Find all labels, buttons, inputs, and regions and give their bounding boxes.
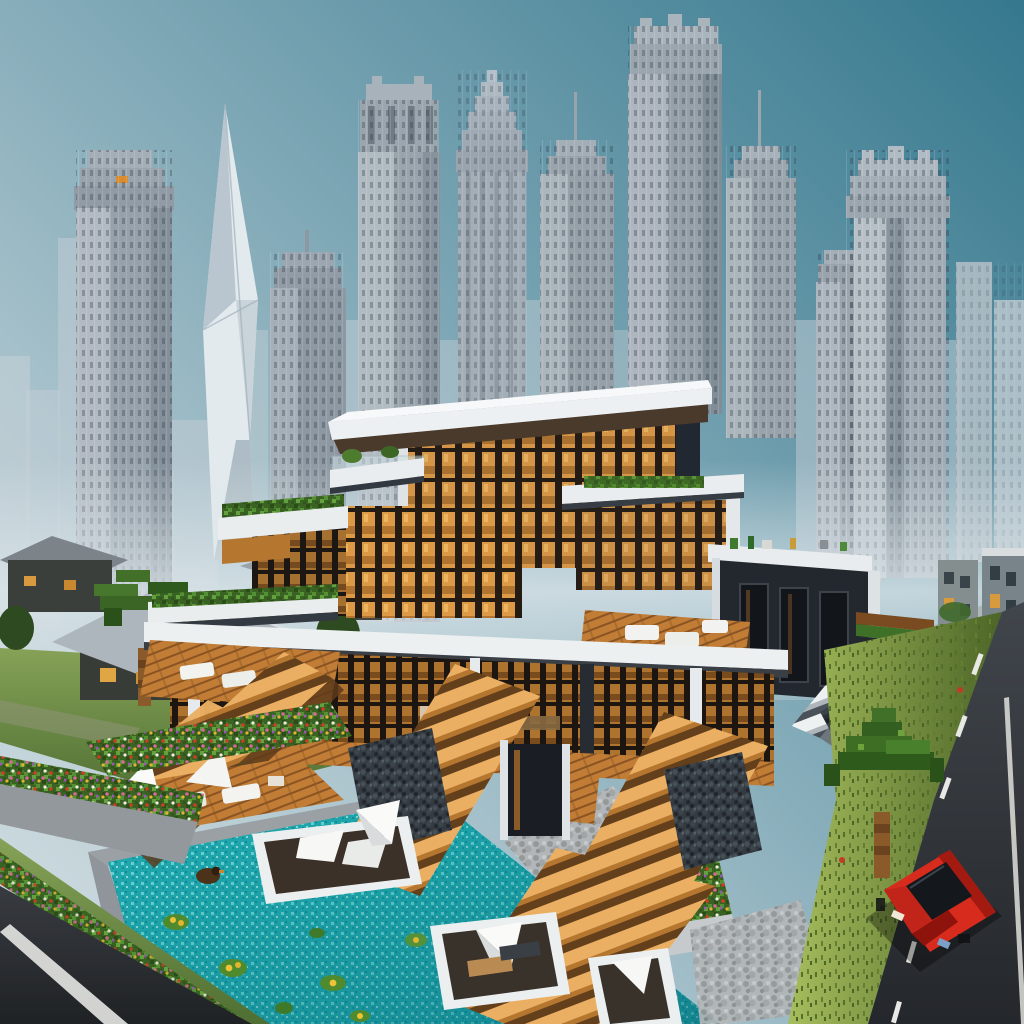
- scene-root: [0, 0, 1024, 1024]
- scene-canvas: [0, 0, 1024, 1024]
- tower-supertall: [628, 14, 722, 414]
- floating-island-3: [588, 948, 682, 1024]
- center-door: [500, 740, 570, 840]
- sofa: [702, 620, 728, 633]
- sofa: [625, 625, 659, 640]
- floating-island-2: [430, 912, 570, 1010]
- sofa: [665, 632, 699, 647]
- tower-tiered-crown: [456, 70, 528, 440]
